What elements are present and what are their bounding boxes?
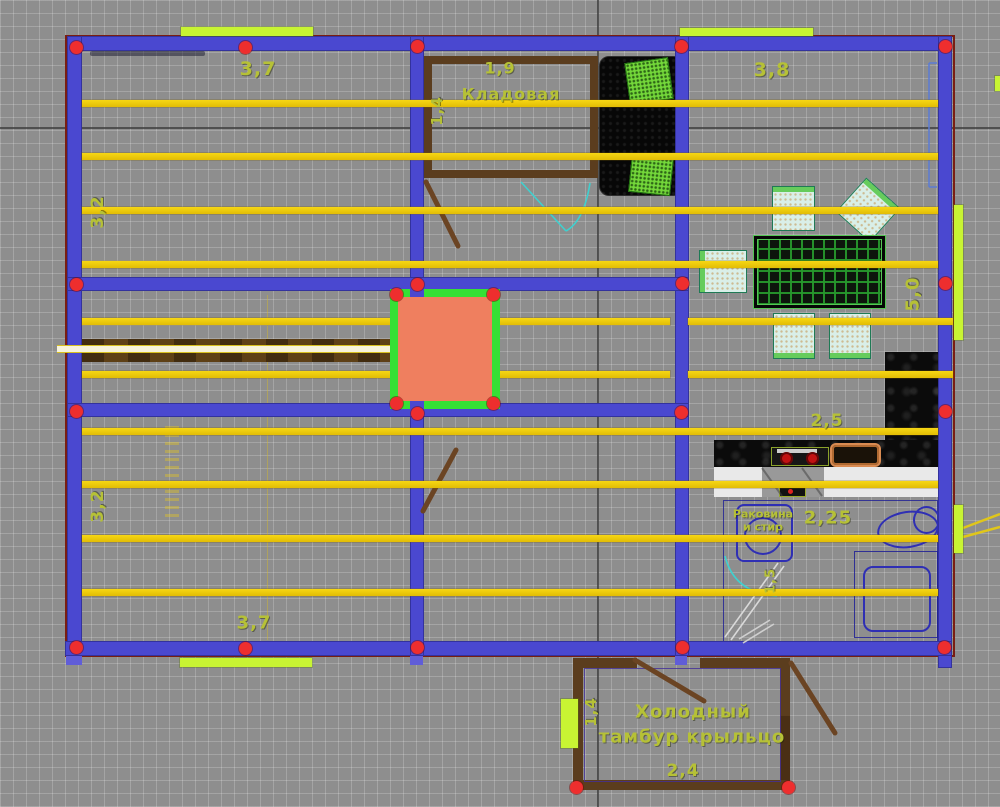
highlight-bar[interactable] bbox=[561, 699, 578, 748]
mini-oven-knob bbox=[788, 489, 793, 494]
dimension-label[interactable]: 1,9 bbox=[484, 59, 515, 78]
floor-joist[interactable] bbox=[82, 207, 938, 214]
dimension-label[interactable]: 2,5 bbox=[810, 411, 843, 431]
dimension-label[interactable]: 1,5 bbox=[764, 568, 779, 594]
room-label-porch-line2[interactable]: тамбур крыльцо bbox=[599, 727, 785, 748]
wall-stub bbox=[66, 656, 82, 665]
node-handle[interactable] bbox=[411, 40, 424, 53]
node-handle[interactable] bbox=[239, 642, 252, 655]
dimension-label[interactable]: 3,7 bbox=[240, 58, 277, 80]
dimension-label[interactable]: 2,4 bbox=[666, 761, 699, 781]
highlight-bar[interactable] bbox=[181, 27, 313, 36]
highlight-bar[interactable] bbox=[180, 658, 312, 667]
node-handle[interactable] bbox=[782, 781, 795, 794]
floor-joist[interactable] bbox=[82, 153, 938, 160]
cad-canvas[interactable]: 3,7 3,8 1,9 Кладовая 1,4 3,2 5,0 2,5 2,2… bbox=[0, 0, 1000, 807]
dimension-label[interactable]: 1,4 bbox=[428, 96, 446, 126]
wall-interior-horizontal-upper[interactable] bbox=[67, 277, 689, 291]
sofa-pillow-top[interactable] bbox=[624, 57, 673, 105]
dimension-label[interactable]: 5,0 bbox=[903, 277, 924, 312]
floor-joist[interactable] bbox=[82, 261, 938, 268]
node-handle[interactable] bbox=[239, 41, 252, 54]
wall-stub bbox=[410, 656, 423, 665]
wall-bottom[interactable] bbox=[65, 641, 952, 656]
node-handle[interactable] bbox=[939, 40, 952, 53]
room-label-porch-line1[interactable]: Холодный bbox=[635, 702, 751, 723]
selected-brace[interactable] bbox=[963, 527, 1000, 537]
node-handle[interactable] bbox=[411, 641, 424, 654]
wall-interior-vertical-b[interactable] bbox=[675, 36, 689, 656]
dimension-label[interactable]: 3,8 bbox=[754, 59, 791, 81]
floor-joist[interactable] bbox=[82, 318, 670, 325]
floor-joist[interactable] bbox=[688, 371, 953, 378]
porch-wall-top-right[interactable] bbox=[700, 658, 790, 668]
node-handle[interactable] bbox=[676, 277, 689, 290]
node-handle[interactable] bbox=[411, 407, 424, 420]
wall-interior-horizontal-lower[interactable] bbox=[67, 403, 689, 417]
floor-joist[interactable] bbox=[82, 535, 938, 542]
node-handle[interactable] bbox=[675, 406, 688, 419]
chair[interactable] bbox=[699, 250, 747, 293]
room-label-storage[interactable]: Кладовая bbox=[462, 85, 561, 104]
highlight-bar[interactable] bbox=[995, 76, 1000, 91]
highlight-bar[interactable] bbox=[680, 28, 813, 36]
floor-joist[interactable] bbox=[82, 589, 938, 596]
node-handle[interactable] bbox=[70, 641, 83, 654]
node-handle[interactable] bbox=[938, 641, 951, 654]
sink-circle[interactable] bbox=[913, 506, 940, 534]
storage-wall-bottom[interactable] bbox=[424, 170, 598, 178]
node-handle[interactable] bbox=[411, 278, 424, 291]
dimension-label[interactable]: 3,2 bbox=[88, 195, 108, 228]
dimension-label[interactable]: 1,4 bbox=[582, 697, 600, 727]
node-handle[interactable] bbox=[70, 41, 83, 54]
dimension-label[interactable]: 3,2 bbox=[88, 489, 108, 522]
node-handle[interactable] bbox=[70, 278, 83, 291]
node-handle[interactable] bbox=[390, 288, 403, 301]
node-handle[interactable] bbox=[570, 781, 583, 794]
node-handle[interactable] bbox=[487, 397, 500, 410]
porch-wall-top-left[interactable] bbox=[573, 658, 637, 668]
kitchen-counter-vertical[interactable] bbox=[885, 352, 940, 440]
node-handle[interactable] bbox=[675, 40, 688, 53]
sink-label-line1[interactable]: Раковина bbox=[733, 508, 793, 521]
wall-stub bbox=[675, 656, 687, 665]
highlight-bar[interactable] bbox=[954, 205, 963, 340]
node-handle[interactable] bbox=[70, 405, 83, 418]
floor-joist[interactable] bbox=[82, 481, 938, 488]
sofa-pillow-bottom[interactable] bbox=[628, 154, 674, 196]
highlighted-beam[interactable] bbox=[57, 345, 393, 353]
highlight-bar[interactable] bbox=[954, 505, 963, 553]
node-handle[interactable] bbox=[390, 397, 403, 410]
node-handle[interactable] bbox=[939, 277, 952, 290]
node-handle[interactable] bbox=[939, 405, 952, 418]
node-handle[interactable] bbox=[487, 288, 500, 301]
floor-joist[interactable] bbox=[82, 371, 670, 378]
dimension-label[interactable]: 2,25 bbox=[804, 508, 852, 529]
wall-right[interactable] bbox=[938, 36, 952, 668]
selected-brace[interactable] bbox=[963, 514, 1000, 528]
kitchen-sink-tray[interactable] bbox=[830, 443, 881, 467]
stove-burner bbox=[806, 452, 819, 465]
node-handle[interactable] bbox=[676, 641, 689, 654]
dimension-label[interactable]: 3,7 bbox=[237, 613, 272, 634]
selected-object-fill[interactable] bbox=[398, 297, 492, 401]
stove-burner bbox=[780, 452, 793, 465]
dining-table[interactable] bbox=[754, 236, 885, 308]
sink-label-line2[interactable]: и стир bbox=[743, 521, 783, 534]
wall-top[interactable] bbox=[67, 36, 952, 51]
shower-box-inner bbox=[863, 566, 931, 632]
floor-joist[interactable] bbox=[688, 318, 953, 325]
porch-door-leaf-brown[interactable] bbox=[791, 663, 835, 733]
